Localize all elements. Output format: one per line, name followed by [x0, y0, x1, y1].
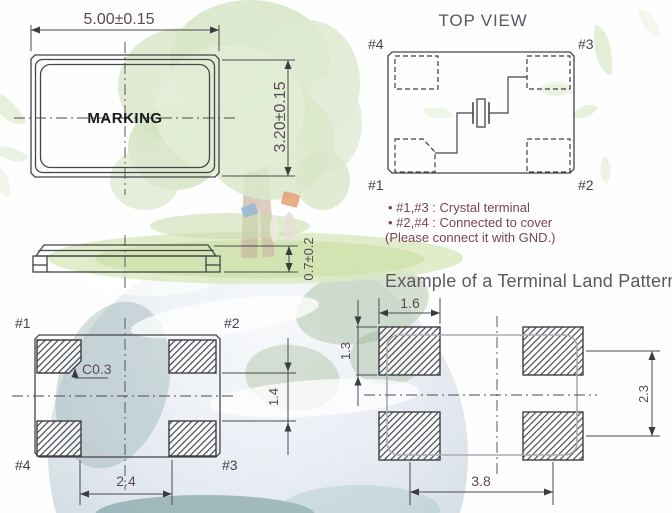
- horizontal-pitch-dimension: 3.8: [471, 473, 491, 489]
- chamfer-dimension: C0.3: [82, 361, 112, 377]
- pad-gap-vertical-dimension: 1.4: [266, 388, 281, 406]
- terminal-notes: • #1,#3 : Crystal terminal • #2,#4 : Con…: [385, 200, 556, 245]
- package-height-dimension: 3.20±0.15: [272, 81, 289, 152]
- chamfer-callout: C0.3: [75, 361, 112, 378]
- pin3-label: #3: [578, 36, 594, 52]
- land-pattern-title: Example of a Terminal Land Pattern: [385, 271, 672, 291]
- package-top-view: 5.00±0.15 MARKING 3.20±0.15: [8, 5, 308, 213]
- pad-height-dimension: 1.3: [338, 342, 353, 360]
- pin3-label: #3: [222, 457, 238, 473]
- bottom-terminal-view: #1 #2 #4 #3 C0.3 1.4 2.4: [8, 305, 320, 511]
- vertical-pitch-dimension: 2.3: [636, 385, 651, 403]
- terminal-pads: [37, 340, 216, 456]
- note-crystal-terminal: • #1,#3 : Crystal terminal: [388, 200, 530, 215]
- package-width-dimension: 5.00±0.15: [83, 11, 154, 28]
- land-pattern-view: Example of a Terminal Land Pattern 1.6 1…: [336, 260, 672, 513]
- land-pads: [379, 327, 583, 460]
- note-connect-gnd: (Please connect it with GND.): [385, 230, 556, 245]
- package-side-view: 0.7±0.2: [8, 232, 330, 296]
- pad-gap-horizontal-dimension: 2.4: [116, 473, 136, 489]
- top-view-title: TOP VIEW: [439, 11, 528, 30]
- pad-width-dimension: 1.6: [400, 295, 420, 311]
- thickness-dimension: 0.7±0.2: [301, 237, 316, 280]
- datasheet-drawing-page: 5.00±0.15 MARKING 3.20±0.15: [0, 0, 672, 513]
- package-outline: [388, 52, 574, 173]
- side-profile: [33, 245, 220, 272]
- pin2-label: #2: [224, 315, 240, 331]
- crystal-symbol: [435, 77, 527, 153]
- note-connected-to-cover: • #2,#4 : Connected to cover: [388, 215, 553, 230]
- pin1-label: #1: [15, 315, 31, 331]
- top-view-diagram: TOP VIEW #4 #3 #1 #2 • #1,#3 : Crystal t…: [336, 6, 672, 258]
- pin2-label: #2: [578, 177, 594, 193]
- hidden-terminal-pads: [395, 56, 570, 172]
- pin1-label: #1: [368, 177, 384, 193]
- pin4-label: #4: [15, 457, 31, 473]
- marking-label: MARKING: [87, 110, 162, 127]
- pin4-label: #4: [368, 36, 384, 52]
